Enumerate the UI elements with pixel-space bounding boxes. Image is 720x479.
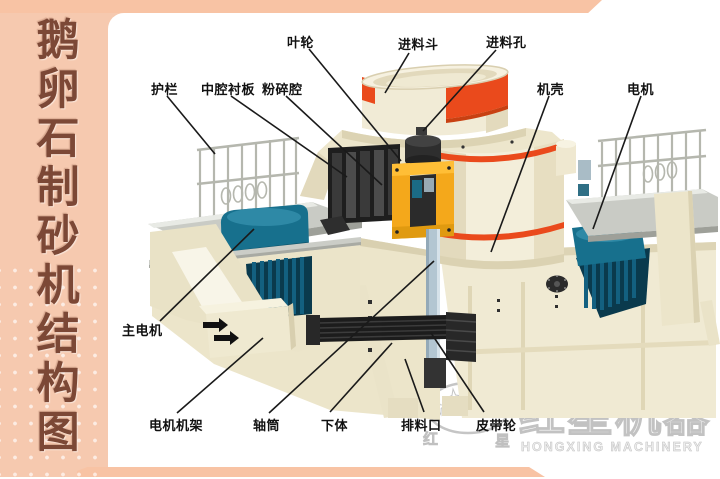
cavity-liner-shape xyxy=(320,144,400,235)
label-motor-frame: 电机机架 xyxy=(149,415,203,434)
label-lower-body: 下体 xyxy=(321,415,348,434)
label-motor: 电机 xyxy=(627,79,654,98)
label-guardrail: 护栏 xyxy=(151,79,178,98)
label-impeller: 叶轮 xyxy=(287,32,314,51)
machine-illustration xyxy=(0,0,720,477)
motor-frame-shape xyxy=(199,298,296,358)
label-feed-hole: 进料孔 xyxy=(486,32,527,51)
feed-hopper-shape xyxy=(361,61,508,136)
label-cavity-liner: 中腔衬板 xyxy=(201,79,255,98)
label-belt-pulley: 皮带轮 xyxy=(476,415,517,434)
label-shaft-tube: 轴筒 xyxy=(253,415,280,434)
label-crushing-chamber: 粉碎腔 xyxy=(262,79,303,98)
label-feed-hopper: 进料斗 xyxy=(398,34,439,53)
label-discharge-port: 排料口 xyxy=(401,415,442,434)
label-main-motor: 主电机 xyxy=(122,320,163,339)
leader-line-guardrail xyxy=(167,96,215,154)
discharge-port-shape xyxy=(424,358,446,388)
label-casing: 机壳 xyxy=(537,79,564,98)
page: { "sidebar": { "title": "鹅卵石制砂机结构图" }, "… xyxy=(0,0,720,477)
